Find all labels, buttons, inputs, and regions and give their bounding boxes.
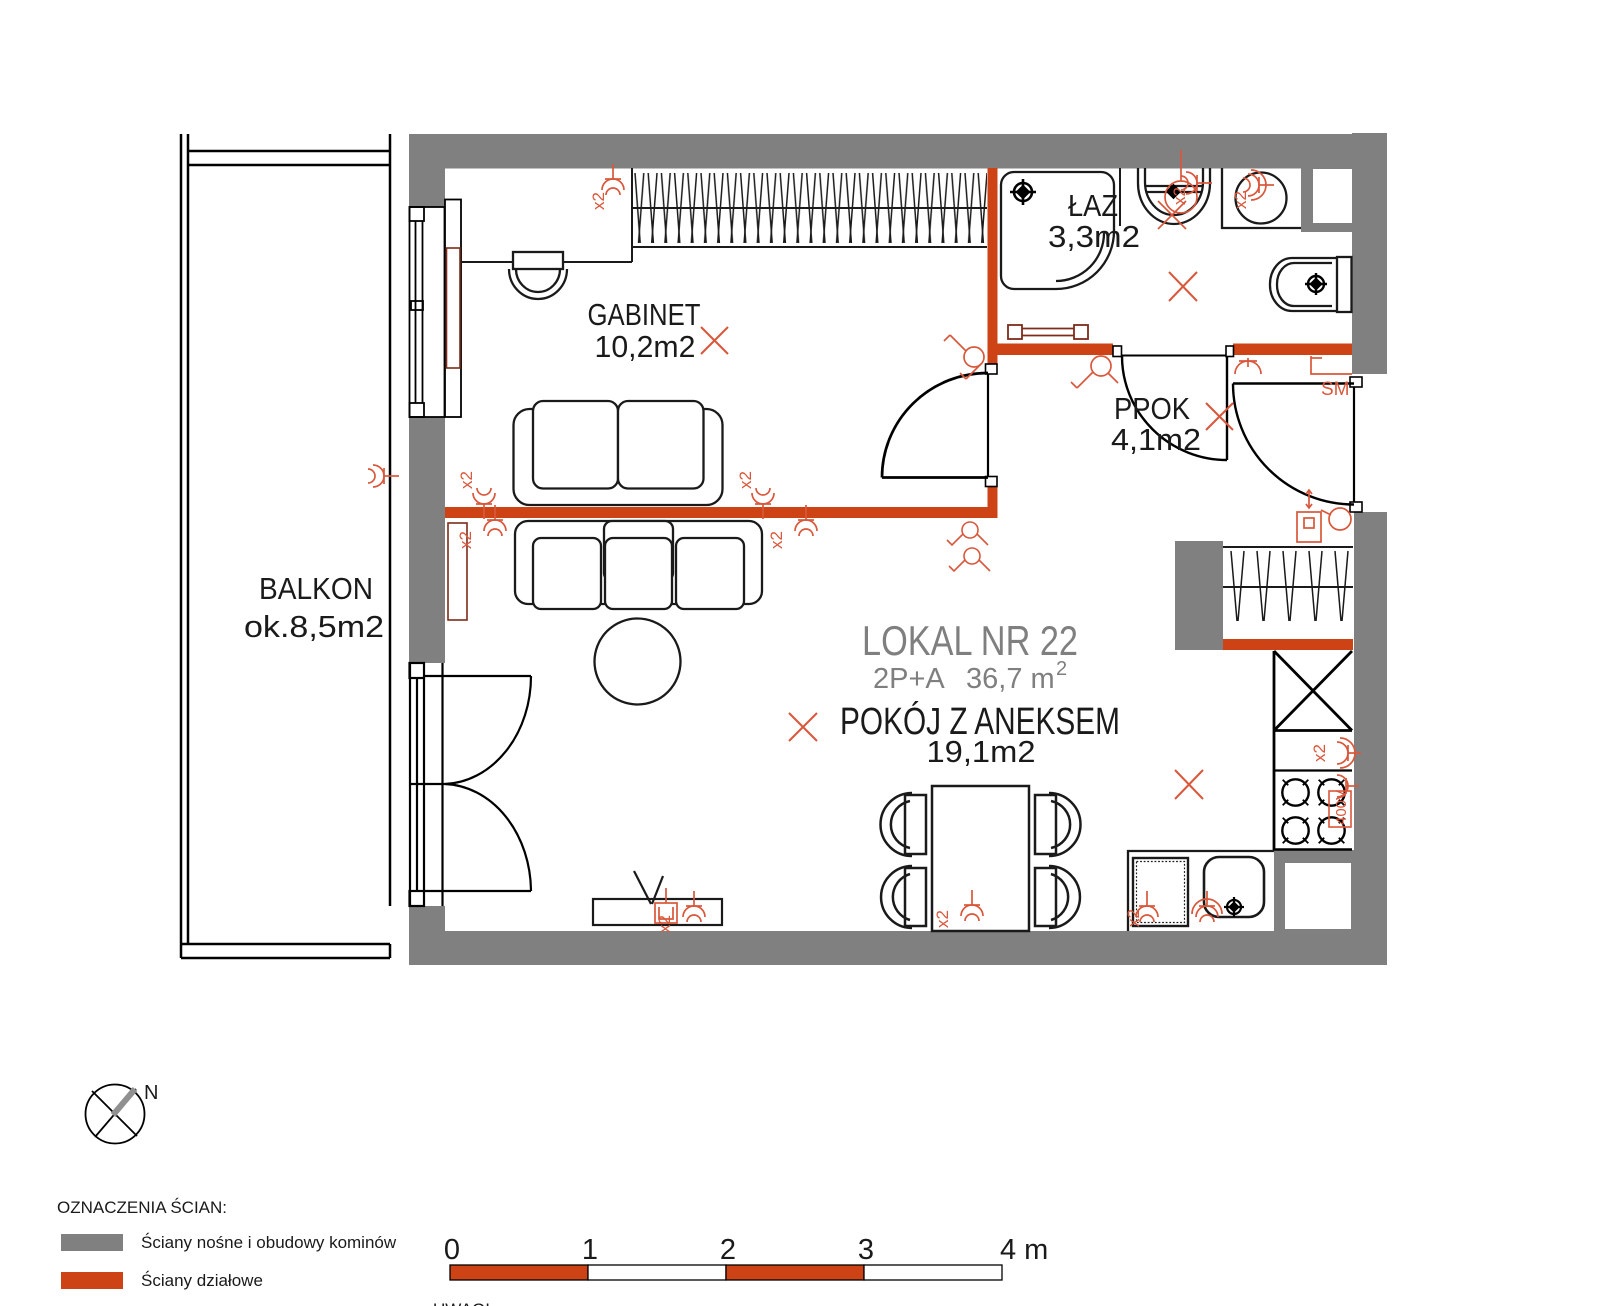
svg-text:1: 1 [582, 1234, 598, 1266]
svg-text:ŁAZ: ŁAZ [1068, 188, 1118, 223]
svg-text:ok.8,5m2: ok.8,5m2 [244, 609, 384, 644]
svg-text:x2: x2 [456, 531, 475, 549]
svg-text:LOKAL NR 22: LOKAL NR 22 [862, 617, 1078, 664]
svg-text:2: 2 [1056, 658, 1067, 680]
svg-text:PPOK: PPOK [1114, 391, 1190, 426]
svg-text:3: 3 [858, 1234, 874, 1266]
svg-text:3,3m2: 3,3m2 [1048, 219, 1140, 254]
svg-text:x2: x2 [767, 531, 786, 549]
svg-text:2: 2 [720, 1234, 736, 1266]
svg-text:x2: x2 [1231, 191, 1250, 209]
svg-text:OZNACZENIA ŚCIAN:: OZNACZENIA ŚCIAN: [57, 1198, 227, 1217]
svg-text:N: N [144, 1082, 158, 1104]
svg-text:10,2m2: 10,2m2 [595, 329, 696, 364]
svg-text:x2: x2 [589, 192, 608, 210]
svg-text:0: 0 [444, 1234, 460, 1266]
svg-text:UWAGI:: UWAGI: [433, 1300, 495, 1306]
svg-text:x2: x2 [1310, 744, 1329, 762]
svg-text:GABINET: GABINET [588, 297, 701, 332]
svg-text:4,1m2: 4,1m2 [1111, 422, 1201, 457]
svg-text:x2: x2 [655, 915, 674, 933]
svg-text:19,1m2: 19,1m2 [927, 734, 1036, 769]
svg-text:x2: x2 [457, 471, 476, 489]
svg-text:Ściany nośne i obudowy kominów: Ściany nośne i obudowy kominów [141, 1233, 397, 1252]
svg-text:x2: x2 [1170, 187, 1189, 205]
svg-text:x2: x2 [1124, 909, 1143, 927]
svg-text:36,7 m: 36,7 m [966, 663, 1055, 695]
svg-text:SM: SM [1321, 379, 1350, 400]
svg-text:x2: x2 [736, 471, 755, 489]
svg-text:x2: x2 [933, 910, 952, 928]
svg-text:Ściany działowe: Ściany działowe [141, 1271, 263, 1290]
svg-text:BALKON: BALKON [259, 571, 373, 606]
svg-text:4 m: 4 m [1000, 1234, 1048, 1266]
svg-text:2P+A: 2P+A [873, 663, 945, 695]
